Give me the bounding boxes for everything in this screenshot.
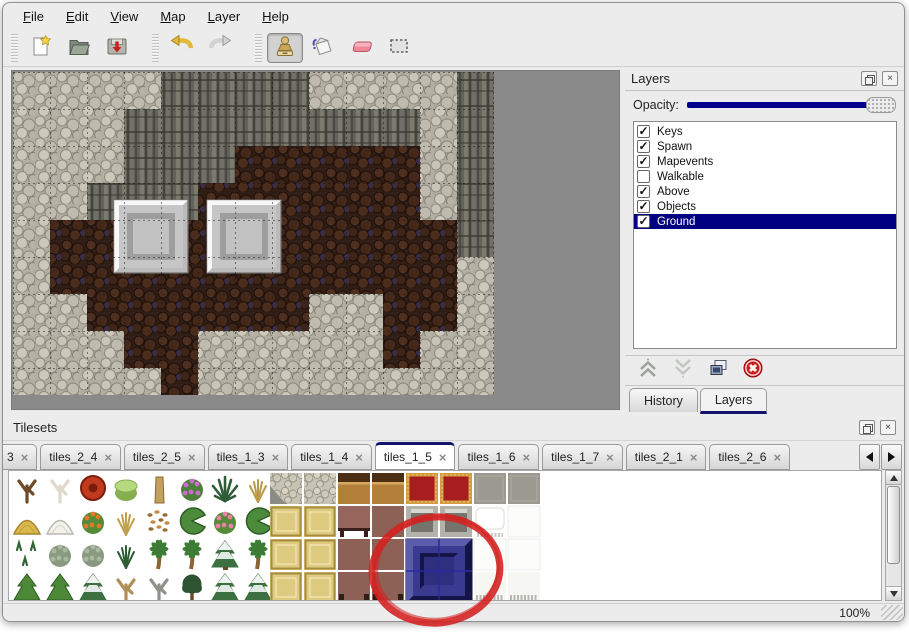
new-icon bbox=[28, 34, 54, 63]
zoom-level: 100% bbox=[839, 606, 870, 620]
layer-row-ground[interactable]: ✓Ground bbox=[634, 214, 896, 229]
toolbar-grip[interactable] bbox=[255, 34, 262, 62]
layer-row-objects[interactable]: ✓Objects bbox=[634, 199, 896, 214]
tileset-tab-tiles_1_6[interactable]: tiles_1_6× bbox=[458, 444, 539, 470]
layer-row-walkable[interactable]: Walkable bbox=[634, 169, 896, 184]
float-panel-icon[interactable] bbox=[861, 71, 877, 86]
layer-row-spawn[interactable]: ✓Spawn bbox=[634, 139, 896, 154]
layer-name: Keys bbox=[657, 126, 683, 138]
tab-label: tiles_1_6 bbox=[467, 450, 515, 464]
save-icon bbox=[104, 34, 130, 63]
scroll-up-button[interactable] bbox=[886, 471, 901, 485]
tab-label: tiles_1_5 bbox=[384, 450, 432, 464]
close-tab-icon[interactable]: × bbox=[439, 451, 447, 464]
tileset-image[interactable] bbox=[9, 471, 881, 601]
menu-item-map[interactable]: Map bbox=[150, 5, 195, 28]
right-arrow-icon bbox=[888, 452, 895, 462]
eraser-icon bbox=[348, 34, 374, 63]
status-bar: 100% bbox=[3, 603, 904, 621]
menu-bar: FileEditViewMapLayerHelp bbox=[3, 3, 904, 30]
opacity-slider-handle[interactable] bbox=[866, 97, 896, 113]
layer-visibility-checkbox[interactable]: ✓ bbox=[637, 140, 650, 153]
tab-label: tiles_2_6 bbox=[718, 450, 766, 464]
close-tab-icon[interactable]: × bbox=[606, 451, 614, 464]
layer-name: Ground bbox=[657, 216, 695, 228]
tab-label: tiles_2_5 bbox=[133, 450, 181, 464]
resize-grip[interactable] bbox=[881, 605, 903, 620]
move-layer-down-button[interactable] bbox=[670, 359, 696, 383]
layers-panel: Layers × Opacity: ✓Keys✓Spawn✓MapeventsW… bbox=[625, 67, 904, 413]
save-file-button[interactable] bbox=[99, 33, 135, 63]
layer-visibility-checkbox[interactable] bbox=[637, 170, 650, 183]
move-layer-up-button[interactable] bbox=[635, 359, 661, 383]
open-file-button[interactable] bbox=[61, 33, 97, 63]
redo-icon bbox=[207, 34, 233, 63]
app-window: FileEditViewMapLayerHelp Layers × Opacit… bbox=[2, 2, 905, 622]
close-tab-icon[interactable]: × bbox=[523, 451, 531, 464]
chevrons-up-icon bbox=[637, 357, 659, 384]
chevrons-down-icon bbox=[672, 357, 694, 384]
eraser-tool-button[interactable] bbox=[343, 33, 379, 63]
copy-icon bbox=[707, 357, 729, 384]
tileset-tab-3[interactable]: 3× bbox=[3, 444, 37, 470]
tilesets-panel: Tilesets × 3×tiles_2_4×tiles_2_5×tiles_1… bbox=[3, 415, 905, 603]
up-arrow-icon bbox=[890, 475, 898, 481]
layer-name: Walkable bbox=[657, 171, 704, 183]
layer-visibility-checkbox[interactable]: ✓ bbox=[637, 185, 650, 198]
tab-label: tiles_2_1 bbox=[635, 450, 683, 464]
tab-label: tiles_1_7 bbox=[551, 450, 599, 464]
close-tab-icon[interactable]: × bbox=[690, 451, 698, 464]
menu-item-layer[interactable]: Layer bbox=[198, 5, 251, 28]
select-icon bbox=[386, 34, 412, 63]
close-tab-icon[interactable]: × bbox=[21, 451, 29, 464]
tab-label: tiles_2_4 bbox=[49, 450, 97, 464]
open-icon bbox=[66, 34, 92, 63]
close-panel-icon[interactable]: × bbox=[882, 71, 898, 86]
tilesets-titlebar: Tilesets × bbox=[3, 415, 905, 441]
tilesets-title: Tilesets bbox=[13, 420, 854, 435]
scroll-down-button[interactable] bbox=[886, 586, 901, 600]
tileset-scrollbar[interactable] bbox=[885, 470, 902, 601]
duplicate-layer-button[interactable] bbox=[705, 359, 731, 383]
layer-visibility-checkbox[interactable]: ✓ bbox=[637, 215, 650, 228]
undo-icon bbox=[169, 34, 195, 63]
stamp-tool-button[interactable] bbox=[267, 33, 303, 63]
tileset-tab-tiles_1_7[interactable]: tiles_1_7× bbox=[542, 444, 623, 470]
tab-history[interactable]: History bbox=[629, 388, 698, 412]
layers-panel-title: Layers bbox=[631, 71, 856, 86]
tab-label: 3 bbox=[7, 450, 14, 464]
close-panel-icon[interactable]: × bbox=[880, 420, 896, 435]
down-arrow-icon bbox=[890, 591, 898, 597]
close-tab-icon[interactable]: × bbox=[104, 451, 112, 464]
layer-visibility-checkbox[interactable]: ✓ bbox=[637, 155, 650, 168]
tileset-tab-tiles_2_1[interactable]: tiles_2_1× bbox=[626, 444, 707, 470]
menu-item-edit[interactable]: Edit bbox=[56, 5, 98, 28]
tab-label: tiles_1_4 bbox=[300, 450, 348, 464]
left-arrow-icon bbox=[866, 452, 873, 462]
layer-row-above[interactable]: ✓Above bbox=[634, 184, 896, 199]
layer-name: Mapevents bbox=[657, 156, 713, 168]
fill-icon bbox=[310, 34, 336, 63]
layer-name: Spawn bbox=[657, 141, 692, 153]
close-tab-icon[interactable]: × bbox=[355, 451, 363, 464]
tileset-tabs: 3×tiles_2_4×tiles_2_5×tiles_1_3×tiles_1_… bbox=[3, 442, 855, 470]
menu-item-view[interactable]: View bbox=[100, 5, 148, 28]
tileset-tab-tiles_1_4[interactable]: tiles_1_4× bbox=[291, 444, 372, 470]
delete-layer-button[interactable] bbox=[740, 359, 766, 383]
menu-item-file[interactable]: File bbox=[13, 5, 54, 28]
redo-button[interactable] bbox=[202, 33, 238, 63]
tileset-tab-tiles_1_5[interactable]: tiles_1_5× bbox=[375, 442, 456, 470]
opacity-label: Opacity: bbox=[633, 98, 679, 112]
menu-item-help[interactable]: Help bbox=[252, 5, 299, 28]
select-tool-button[interactable] bbox=[381, 33, 417, 63]
fill-tool-button[interactable] bbox=[305, 33, 341, 63]
layer-name: Above bbox=[657, 186, 690, 198]
scrollbar-thumb[interactable] bbox=[887, 486, 900, 564]
toolbar-grip[interactable] bbox=[11, 34, 18, 62]
layer-actions bbox=[625, 355, 904, 386]
opacity-slider[interactable] bbox=[687, 96, 896, 114]
layer-name: Objects bbox=[657, 201, 696, 213]
layer-row-keys[interactable]: ✓Keys bbox=[634, 124, 896, 139]
tileset-tab-tiles_1_3[interactable]: tiles_1_3× bbox=[208, 444, 289, 470]
layer-row-mapevents[interactable]: ✓Mapevents bbox=[634, 154, 896, 169]
close-tab-icon[interactable]: × bbox=[773, 451, 781, 464]
layer-list: ✓Keys✓Spawn✓MapeventsWalkable✓Above✓Obje… bbox=[633, 121, 897, 349]
map-image[interactable] bbox=[13, 72, 494, 395]
delete-icon bbox=[742, 357, 764, 384]
stamp-icon bbox=[272, 34, 298, 63]
tileset-tab-tiles_2_4[interactable]: tiles_2_4× bbox=[40, 444, 121, 470]
tileset-picker[interactable] bbox=[8, 470, 882, 601]
tab-scroll-buttons bbox=[858, 444, 902, 470]
opacity-row: Opacity: bbox=[625, 91, 904, 119]
tab-label: tiles_1_3 bbox=[217, 450, 265, 464]
float-panel-icon[interactable] bbox=[859, 420, 875, 435]
panel-tabs: HistoryLayers bbox=[629, 388, 769, 414]
layer-visibility-checkbox[interactable]: ✓ bbox=[637, 125, 650, 138]
map-canvas[interactable] bbox=[11, 70, 620, 410]
new-file-button[interactable] bbox=[23, 33, 59, 63]
tab-layers[interactable]: Layers bbox=[700, 388, 768, 414]
opacity-slider-track[interactable] bbox=[687, 102, 892, 108]
layer-visibility-checkbox[interactable]: ✓ bbox=[637, 200, 650, 213]
close-tab-icon[interactable]: × bbox=[188, 451, 196, 464]
undo-button[interactable] bbox=[164, 33, 200, 63]
scroll-tabs-right-button[interactable] bbox=[881, 444, 902, 470]
toolbar bbox=[3, 30, 904, 67]
tileset-tab-tiles_2_5[interactable]: tiles_2_5× bbox=[124, 444, 205, 470]
tileset-tab-tiles_2_6[interactable]: tiles_2_6× bbox=[709, 444, 790, 470]
scroll-tabs-left-button[interactable] bbox=[859, 444, 880, 470]
toolbar-grip[interactable] bbox=[152, 34, 159, 62]
layers-panel-titlebar: Layers × bbox=[625, 67, 904, 91]
close-tab-icon[interactable]: × bbox=[272, 451, 280, 464]
